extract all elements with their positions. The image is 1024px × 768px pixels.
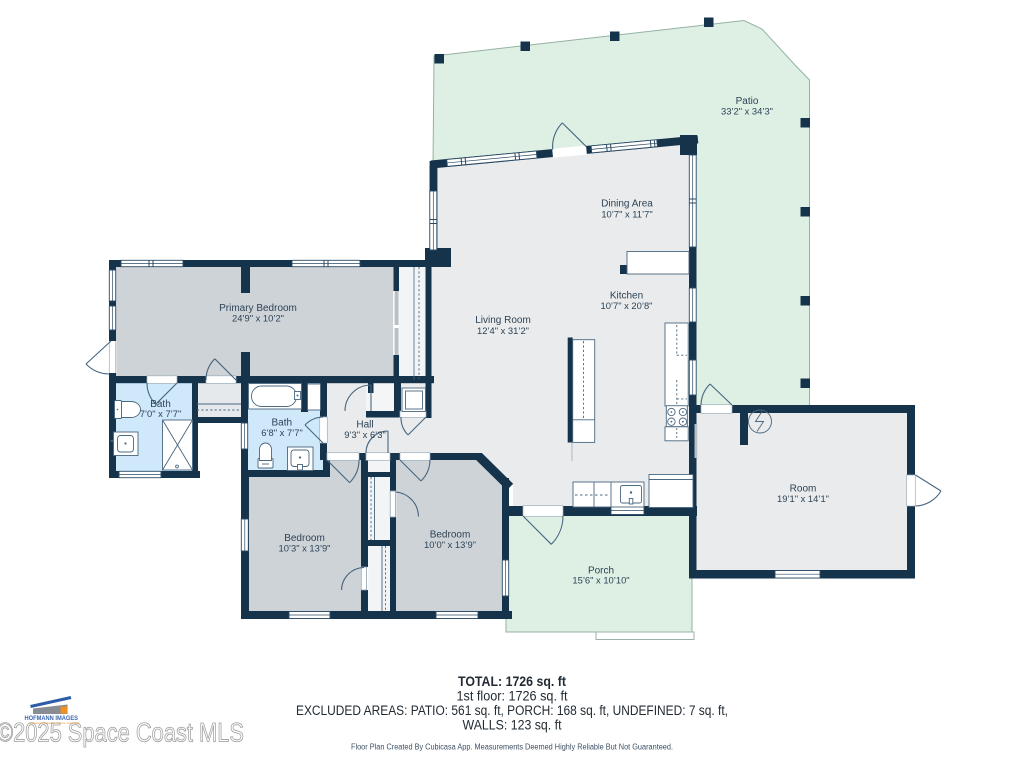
svg-text:9’3" x 6’3": 9’3" x 6’3" bbox=[344, 429, 386, 440]
svg-text:Architectural • Real Estate •: Architectural • Real Estate • Interiors … bbox=[29, 721, 79, 725]
svg-text:EXCLUDED AREAS: PATIO: 561 sq.: EXCLUDED AREAS: PATIO: 561 sq. ft, PORCH… bbox=[296, 703, 728, 718]
svg-text:10’3" x 13’9": 10’3" x 13’9" bbox=[278, 543, 330, 554]
svg-text:10’7" x 11’7": 10’7" x 11’7" bbox=[601, 209, 652, 220]
svg-text:24’9" x 10’2": 24’9" x 10’2" bbox=[232, 313, 284, 324]
svg-text:6’8" x 7’7": 6’8" x 7’7" bbox=[261, 427, 303, 438]
svg-text:TOTAL: 1726 sq. ft: TOTAL: 1726 sq. ft bbox=[458, 674, 566, 689]
svg-text:15’6" x 10’10": 15’6" x 10’10" bbox=[572, 575, 629, 586]
svg-text:Floor Plan Created By Cubicasa: Floor Plan Created By Cubicasa App. Meas… bbox=[351, 743, 673, 752]
svg-text:WALLS: 123 sq. ft: WALLS: 123 sq. ft bbox=[463, 718, 562, 733]
svg-text:7’0" x 7’7": 7’0" x 7’7" bbox=[140, 408, 182, 419]
svg-text:1st floor: 1726 sq. ft: 1st floor: 1726 sq. ft bbox=[457, 689, 568, 704]
svg-text:10’0" x 13’9": 10’0" x 13’9" bbox=[424, 539, 476, 550]
svg-text:10’7" x 20’8": 10’7" x 20’8" bbox=[600, 300, 652, 311]
svg-text:19’1" x 14’1": 19’1" x 14’1" bbox=[777, 493, 829, 504]
svg-text:12’4" x 31’2": 12’4" x 31’2" bbox=[477, 325, 529, 336]
svg-text:33’2" x 34’3": 33’2" x 34’3" bbox=[721, 106, 773, 117]
